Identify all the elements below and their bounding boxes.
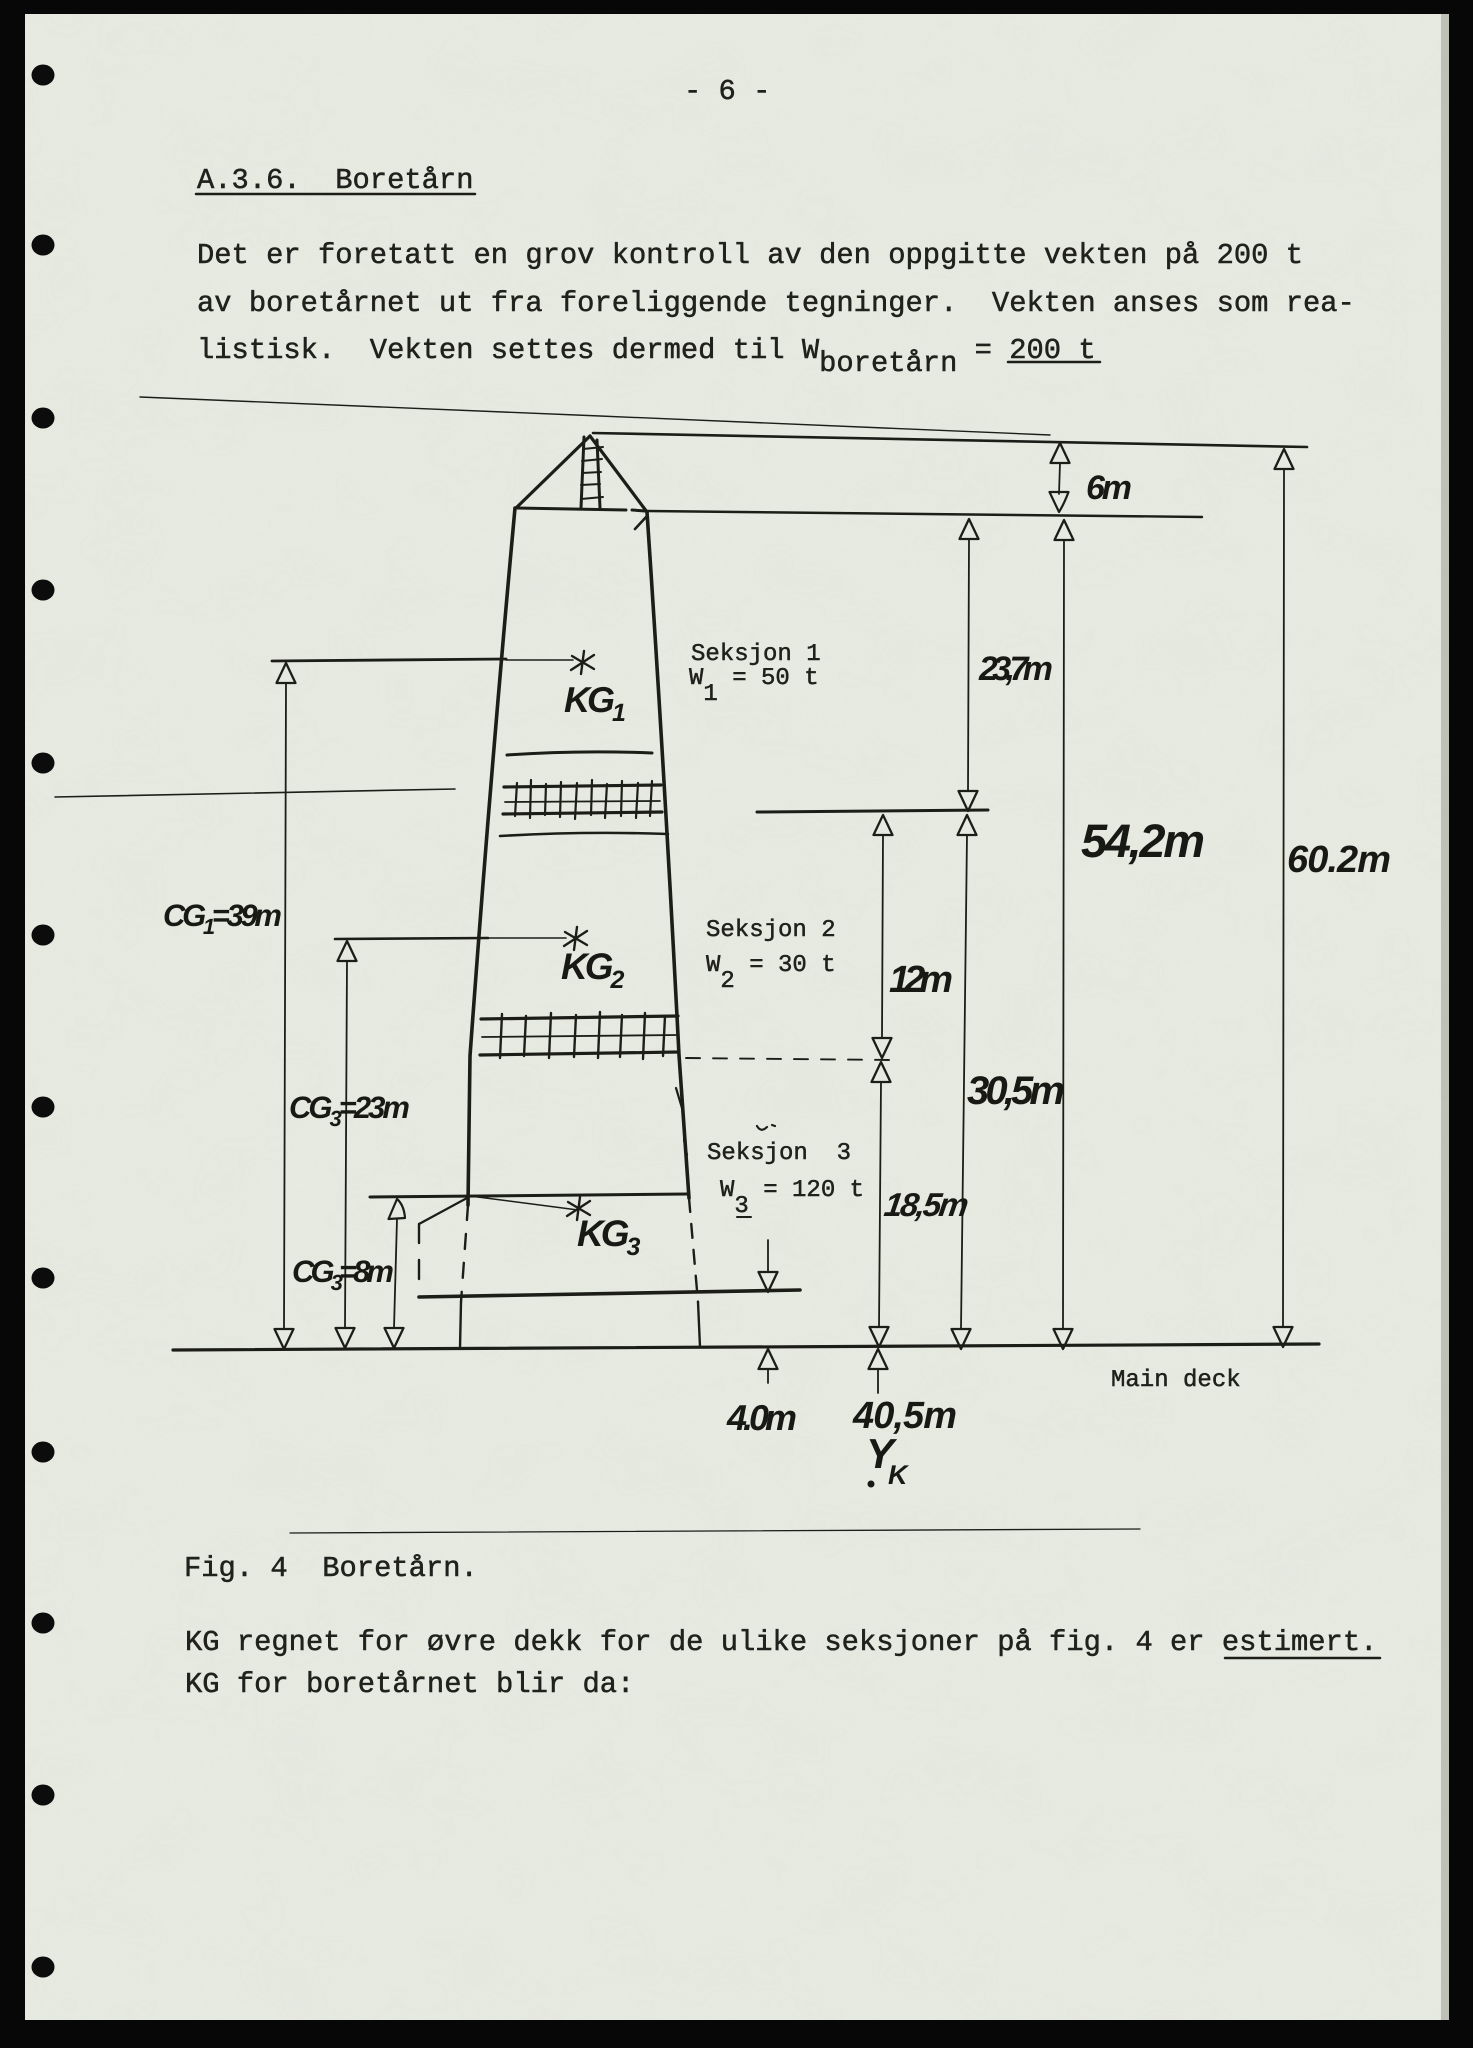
svg-text:Fig. 4 Boretårn.: Fig. 4 Boretårn.	[184, 1552, 478, 1585]
svg-text:K: K	[888, 1460, 910, 1490]
svg-text:18,5m: 18,5m	[882, 1186, 971, 1223]
svg-text:30,5m: 30,5m	[967, 1069, 1065, 1113]
svg-text:Main deck: Main deck	[1111, 1367, 1241, 1394]
svg-text:- 6 -: - 6 -	[684, 75, 770, 108]
svg-text:Seksjon 3: Seksjon 3	[707, 1140, 851, 1167]
svg-text:4.0m: 4.0m	[726, 1397, 797, 1438]
svg-text:av boretårnet ut fra foreligge: av boretårnet ut fra foreliggende tegnin…	[197, 287, 1355, 320]
svg-text:CG3=23m: CG3=23m	[289, 1090, 410, 1131]
svg-text:Seksjon 2: Seksjon 2	[706, 917, 836, 944]
svg-text:12m: 12m	[889, 959, 953, 1001]
svg-text:54,2m: 54,2m	[1081, 814, 1205, 867]
svg-text:CG3=8m: CG3=8m	[292, 1254, 394, 1295]
svg-text:6m: 6m	[1086, 469, 1132, 507]
svg-text:A.3.6. Boretårn: A.3.6. Boretårn	[197, 164, 474, 197]
svg-text:Seksjon 1: Seksjon 1	[691, 641, 821, 668]
svg-text:23,7m: 23,7m	[978, 650, 1053, 688]
svg-text:KG for boretårnet blir da:: KG for boretårnet blir da:	[185, 1668, 634, 1701]
svg-text:CG1=39m: CG1=39m	[163, 898, 282, 939]
svg-text:60.2m: 60.2m	[1287, 839, 1391, 881]
svg-text:KG regnet for øvre dekk for de: KG regnet for øvre dekk for de ulike sek…	[185, 1626, 1377, 1659]
svg-text:Det er foretatt en grov kontro: Det er foretatt en grov kontroll av den …	[197, 239, 1303, 272]
